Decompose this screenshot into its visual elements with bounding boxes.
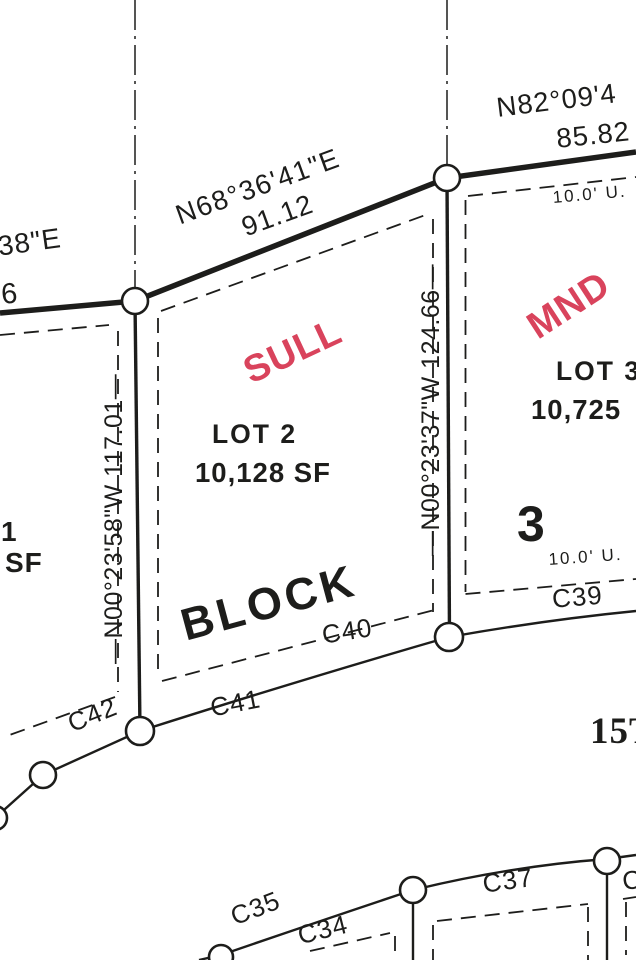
lot-line-lot1-lot2 xyxy=(135,301,140,731)
survey-monument xyxy=(435,623,463,651)
curve-label-c37: C37 xyxy=(481,864,535,897)
lot-line-lot2-lot3 xyxy=(447,178,450,637)
setback-lot1-top xyxy=(0,325,109,335)
distance-85-82-fragment: 85.82 xyxy=(555,117,631,152)
curve-label-c40: C40 xyxy=(320,614,374,648)
lot3-area-fragment: 10,725 xyxy=(531,396,621,424)
lot2-area: 10,128 SF xyxy=(195,459,331,487)
survey-monument xyxy=(594,848,620,874)
plat-map: 38"E 6 N68°36'41"E 91.12 N82°09'4 85.82 … xyxy=(0,0,636,960)
survey-monument xyxy=(209,945,233,960)
lot2-label: LOT 2 xyxy=(212,421,297,448)
dimension-lot2-lot3: —N00°23'37"W 124.66— xyxy=(419,264,444,556)
setback-south-lot-b-top xyxy=(437,904,588,921)
dimension-lot1-lot2: —N00°23'58"W 117.01— xyxy=(102,374,127,664)
survey-monument xyxy=(122,288,148,314)
curve-label-c39: C39 xyxy=(551,582,604,612)
survey-monument xyxy=(400,877,426,903)
setback-south-lot-c-top xyxy=(623,897,636,899)
survey-monument xyxy=(30,762,56,788)
setback-lot2-top xyxy=(161,213,431,311)
distance-left-fragment: 6 xyxy=(0,280,20,310)
survey-monument xyxy=(126,717,154,745)
lot3-label: LOT 3 xyxy=(556,358,636,385)
survey-monument xyxy=(434,165,460,191)
curve-label-c38-fragment: C38 xyxy=(621,863,636,894)
lot1-number-fragment: 1 xyxy=(1,518,18,546)
lot1-area-fragment: SF xyxy=(5,549,43,577)
street-name-fragment: 15TH xyxy=(590,713,636,750)
block-number: 3 xyxy=(517,499,546,549)
